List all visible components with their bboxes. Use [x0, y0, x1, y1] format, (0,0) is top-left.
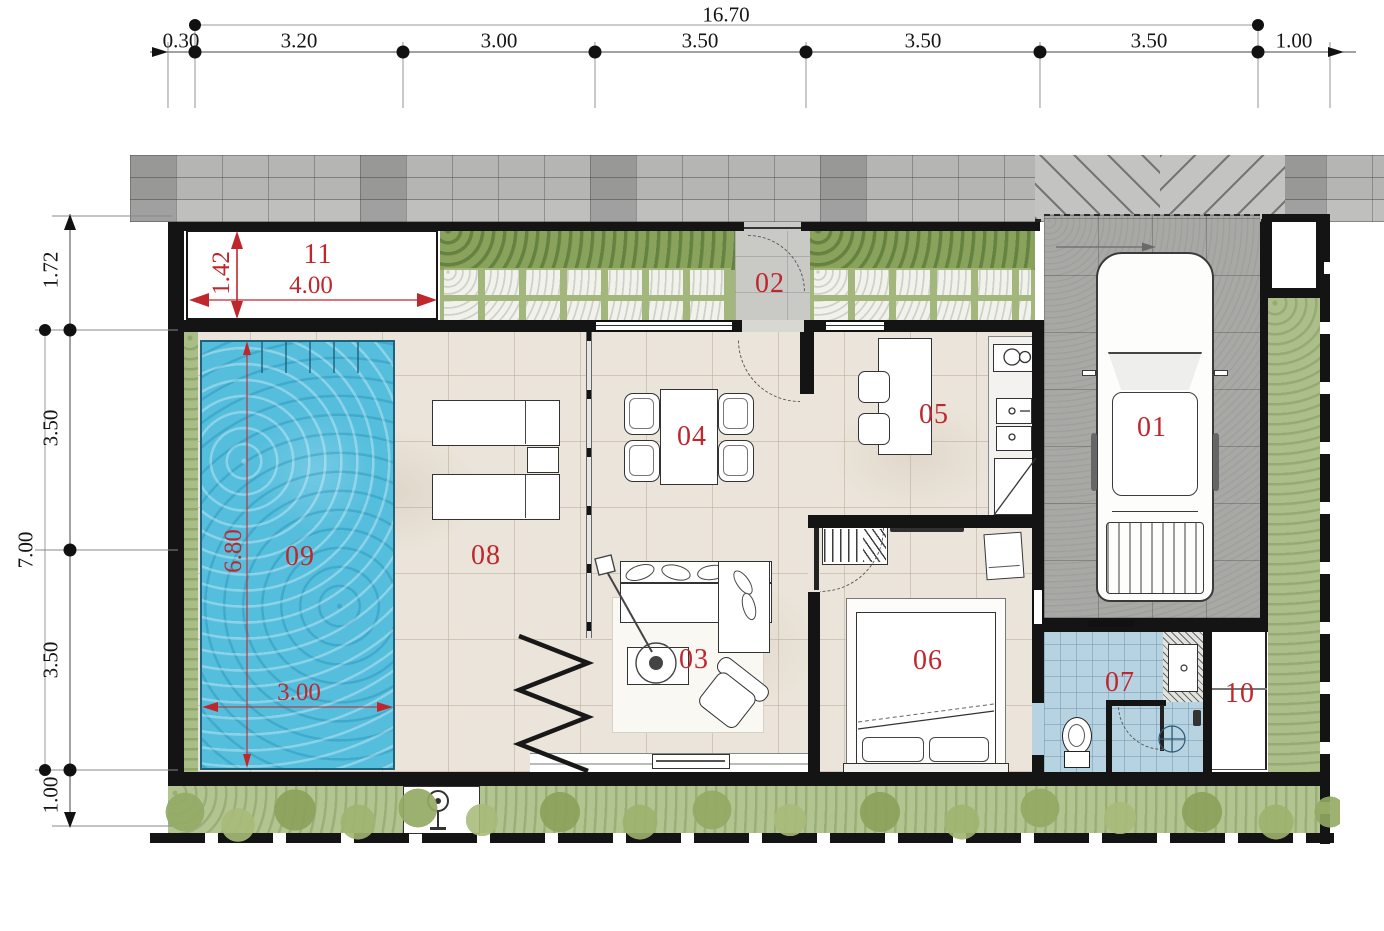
dim-pool-width: 3.00 [277, 679, 321, 707]
garden-strip-south [168, 786, 1330, 833]
glass-wall [586, 332, 592, 638]
garden-bed-right [810, 222, 1035, 329]
dim-left-total: 7.00 [14, 532, 39, 569]
room-label-07: 07 [1105, 667, 1135, 699]
dim-top-seg-3: 3.50 [682, 29, 719, 54]
dim-top-total: 16.70 [702, 3, 749, 28]
bathroom-door-gap [1032, 703, 1044, 755]
lounger-2-headrest-line [525, 475, 526, 518]
dining-chair-2 [624, 440, 660, 482]
car-mirror-left [1082, 370, 1096, 376]
wall-entry-stub [800, 332, 814, 394]
wall-south [168, 772, 1330, 786]
sofa-pillow [623, 561, 656, 585]
room-label-01: 01 [1137, 412, 1167, 444]
toilet-tank [1064, 751, 1090, 768]
stepping-stones-left [444, 268, 731, 326]
wall-west [168, 222, 184, 786]
car-wheel-left [1091, 433, 1097, 491]
window-line [826, 325, 884, 326]
lounger-side-table [527, 447, 559, 473]
kitchen-sink-2 [996, 426, 1032, 451]
entry-door-gap [742, 320, 804, 332]
room-label-06: 06 [913, 645, 943, 677]
sofa-pillow [660, 562, 693, 584]
dim-top-lines [150, 25, 1356, 108]
stepping-stones-right [814, 268, 1031, 326]
bedroom-chair-line [989, 565, 1020, 569]
bedroom-chair [983, 532, 1024, 581]
boundary-east-dashed [1320, 214, 1330, 844]
chair-inner [723, 398, 748, 429]
chair-inner [629, 398, 654, 429]
outdoor-shower-base [430, 827, 446, 830]
dim-top-seg-0: 0.30 [163, 29, 200, 54]
car-mirror-right [1214, 370, 1228, 376]
shower-divider-vertical [1106, 700, 1112, 773]
shower-head-center [435, 798, 441, 804]
shower-fixture [1193, 710, 1201, 726]
dim-left-seg-1: 3.50 [39, 410, 64, 447]
chair-inner [723, 445, 748, 476]
toilet-bowl [1062, 717, 1092, 755]
car-rear-window [1112, 498, 1198, 512]
outdoor-shower-pole [437, 812, 439, 828]
wall-area10-west [1203, 623, 1212, 773]
glass-wall-mullions [587, 332, 591, 638]
dining-chair-3 [718, 393, 754, 435]
window-bedroom-east [1032, 590, 1044, 624]
sofa-chaise [718, 561, 770, 653]
window-north-living [596, 320, 732, 332]
room-label-09: 09 [285, 541, 315, 573]
window-line [596, 325, 732, 326]
driveway-apron [1035, 155, 1285, 222]
car-roof [1112, 392, 1198, 496]
room-label-08: 08 [471, 540, 501, 572]
lounger-1-headrest-line [525, 401, 526, 444]
floor-plan-canvas: 16.70 0.30 3.20 3.00 3.50 3.50 3.50 1.00… [0, 0, 1384, 931]
room-label-10: 10 [1225, 678, 1255, 710]
dim-top-seg-5: 3.50 [1131, 29, 1168, 54]
outdoor-shower-head [427, 790, 449, 812]
dining-chair-4 [718, 440, 754, 482]
chaise-pillow [739, 591, 759, 621]
window-north-kitchen [826, 320, 884, 332]
car-windshield [1108, 352, 1202, 390]
towel-rail [1088, 620, 1134, 627]
chair-inner [629, 445, 654, 476]
wall-bedroom-north [808, 515, 1044, 528]
dim-left-lines [35, 214, 178, 826]
dim-top-seg-4: 3.50 [905, 29, 942, 54]
car-wheel-right [1213, 433, 1219, 491]
room-label-03: 03 [679, 644, 709, 676]
dim-area11-depth: 1.42 [208, 251, 236, 295]
garden-bed-left [440, 222, 735, 329]
refrigerator [994, 458, 1036, 515]
dim-top-seg-6: 1.00 [1276, 29, 1313, 54]
dim-left-seg-3: 1.00 [39, 777, 64, 814]
dining-chair-1 [624, 393, 660, 435]
gate-gap [744, 222, 801, 231]
dim-left-dots [39, 214, 77, 828]
apron-chevron-left [1035, 155, 1160, 219]
storage-room [1272, 222, 1316, 288]
kitchen-sink-1 [996, 398, 1032, 424]
tv-console-line [656, 760, 725, 762]
wall-north-boundary [168, 222, 1040, 231]
dim-left-seg-2: 3.50 [39, 642, 64, 679]
room-label-04: 04 [677, 421, 707, 453]
stove [993, 344, 1033, 372]
dim-top-seg-2: 3.00 [481, 29, 518, 54]
dim-area11-width: 4.00 [289, 272, 333, 300]
dim-left-seg-0: 1.72 [39, 252, 64, 289]
bar-stool-2 [858, 413, 890, 445]
wall-carport-south [1040, 618, 1268, 632]
vanity-sink [1168, 644, 1198, 692]
room-label-11: 11 [304, 239, 333, 271]
room-label-05: 05 [919, 399, 949, 431]
grass-sliver-west [184, 332, 198, 772]
bar-stool-1 [858, 371, 890, 403]
toilet-bowl-inner [1068, 724, 1085, 747]
bedroom-door-leaf [814, 528, 819, 590]
room-label-02: 02 [755, 268, 785, 300]
bed-pillow-1 [862, 737, 924, 762]
apron-chevron-right [1160, 155, 1285, 219]
tv-console-living [652, 754, 730, 769]
dim-top-seg-1: 3.20 [281, 29, 318, 54]
bed-pillow-2 [929, 737, 989, 762]
dim-pool-length: 6.80 [220, 529, 248, 573]
car-bed-slats [1106, 522, 1204, 594]
boundary-south-dashed [150, 833, 1334, 843]
grass-strip-east [1268, 296, 1320, 808]
sun-lounger-2 [432, 474, 560, 520]
sun-lounger-1 [432, 400, 560, 446]
